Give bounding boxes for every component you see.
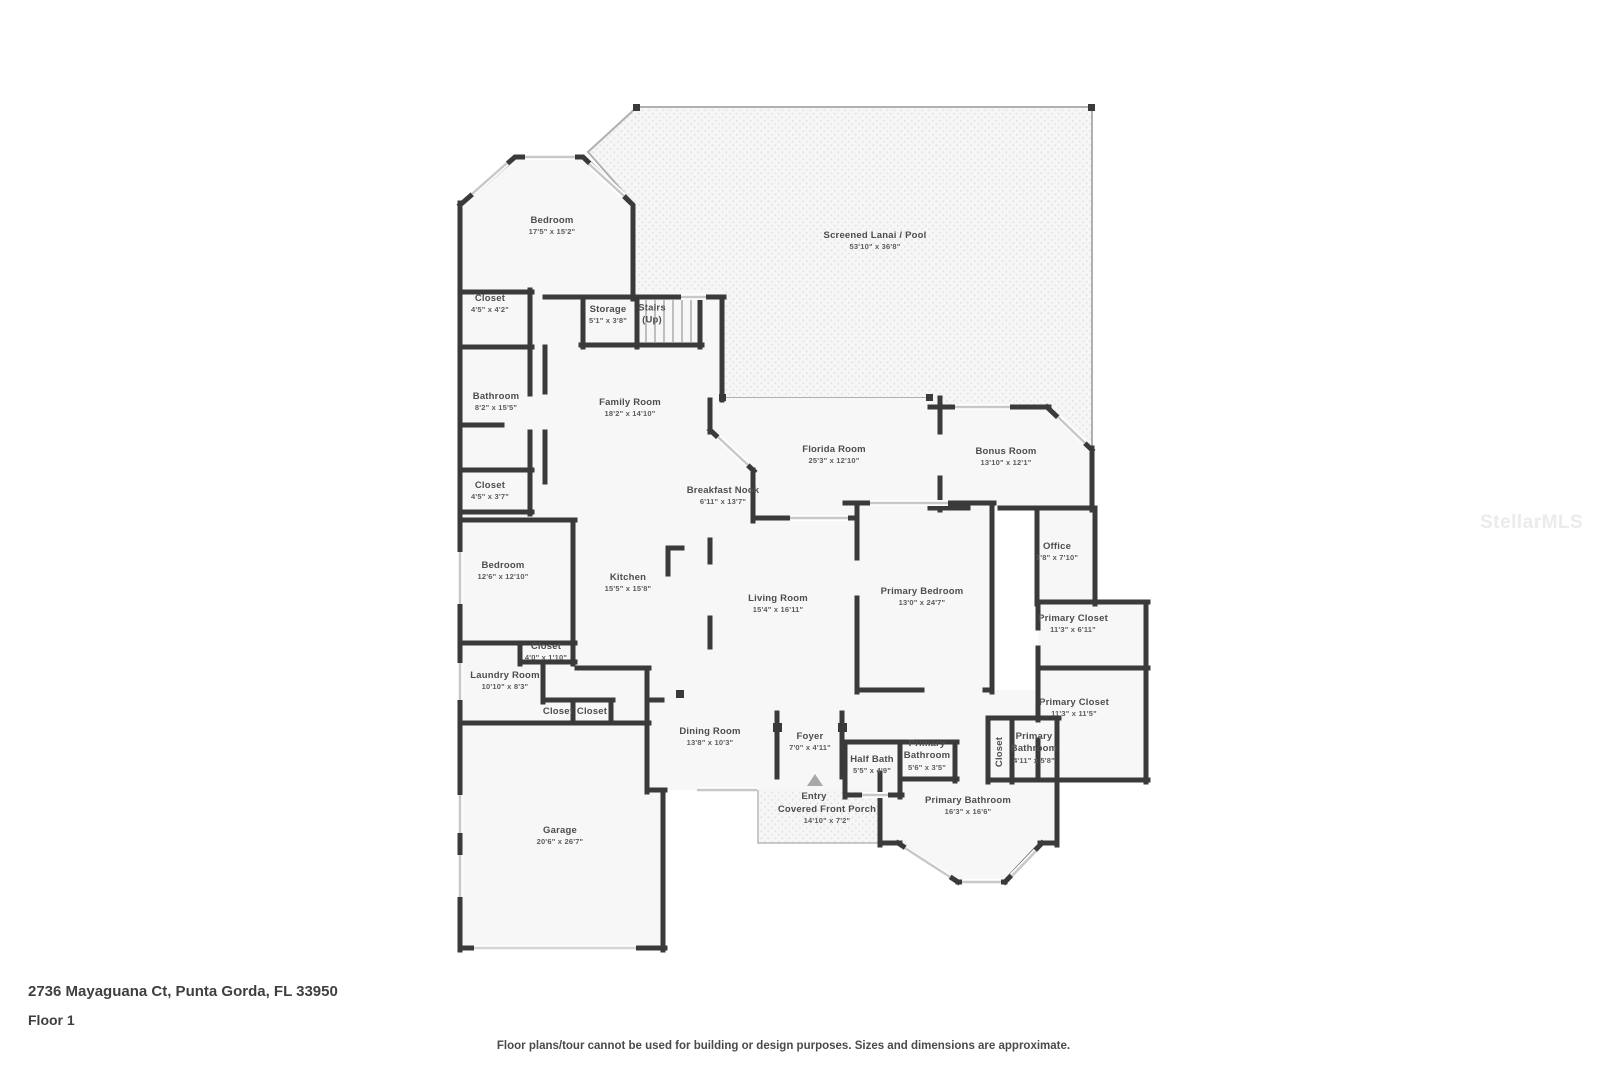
floor-plan-canvas: Bedroom17'5" x 15'2"Screened Lanai / Poo… — [0, 0, 1600, 1066]
disclaimer-text: Floor plans/tour cannot be used for buil… — [0, 1040, 1567, 1052]
property-address: 2736 Mayaguana Ct, Punta Gorda, FL 33950 — [28, 983, 338, 1000]
floor-plan-drawing — [0, 0, 1600, 1066]
stellar-mls-watermark: StellarMLS — [1480, 512, 1583, 534]
floor-label: Floor 1 — [28, 1012, 75, 1028]
